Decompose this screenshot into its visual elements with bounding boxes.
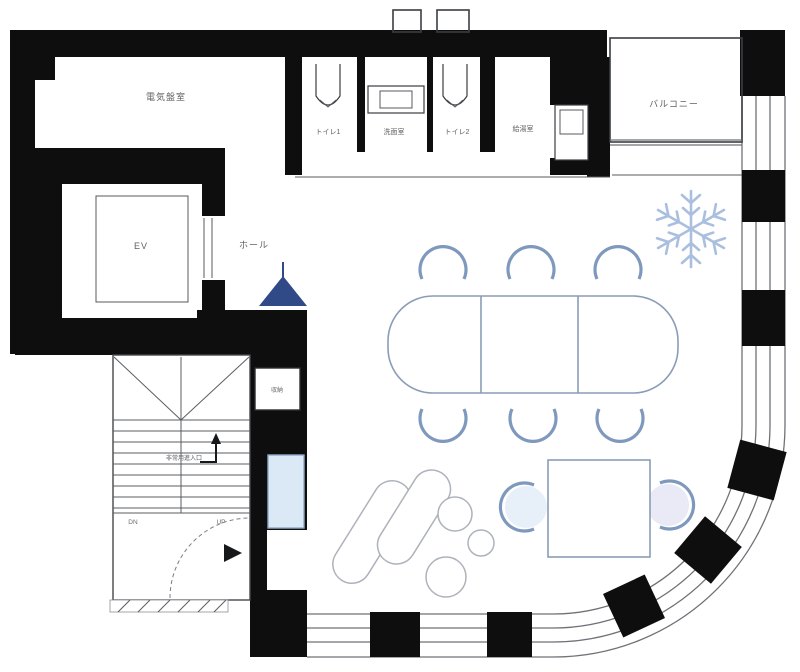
- chair-fill: [505, 486, 547, 528]
- balcony: バルコニー: [610, 38, 742, 175]
- elevator-label: EV: [134, 241, 148, 251]
- sink-box: [555, 105, 588, 160]
- stairs-dn-label: DN: [128, 519, 138, 526]
- floor-plan: バルコニー 電気盤室 トイレ1 洗面室 トイレ2 給湯室: [0, 0, 800, 672]
- conference-table: [388, 296, 678, 393]
- umbrella-stand-icon: [259, 262, 307, 306]
- ottoman: [426, 557, 466, 597]
- chair: [420, 247, 466, 279]
- counter-unit: [268, 455, 304, 528]
- meeting-set: [500, 460, 693, 557]
- hall-label: ホール: [239, 240, 269, 250]
- storage-label: 収納: [271, 386, 283, 394]
- toilet2-label: トイレ2: [445, 129, 470, 136]
- chair: [508, 247, 554, 279]
- emergency-entry-label: 非常用進入口: [166, 454, 202, 462]
- kitchenette-label: 給湯室: [513, 124, 534, 133]
- toilet1-fixture: [316, 64, 340, 107]
- snowflake-icon: [654, 191, 729, 267]
- stairwell: 非常用進入口 DN UP: [110, 355, 250, 612]
- chair: [595, 247, 641, 279]
- balcony-label: バルコニー: [649, 99, 699, 109]
- chair: [597, 409, 643, 441]
- chair: [420, 409, 466, 441]
- ottoman: [468, 530, 494, 556]
- square-table: [548, 460, 650, 557]
- entrance-threshold: [110, 600, 228, 612]
- floor-plan-drawing: バルコニー 電気盤室 トイレ1 洗面室 トイレ2 給湯室: [0, 0, 800, 672]
- washroom-label: 洗面室: [384, 127, 405, 136]
- toilet2-fixture: [443, 64, 467, 107]
- chair: [510, 409, 556, 441]
- washroom-counter: [368, 86, 424, 113]
- chair-fill: [647, 484, 689, 526]
- electrical-room-label: 電気盤室: [146, 91, 186, 102]
- toilet1-label: トイレ1: [316, 129, 341, 136]
- roof-vent-boxes: [393, 10, 469, 32]
- conference-set: [388, 247, 678, 442]
- lounge-set: [326, 463, 494, 597]
- ottoman: [438, 497, 472, 531]
- storage: 収納: [255, 368, 300, 410]
